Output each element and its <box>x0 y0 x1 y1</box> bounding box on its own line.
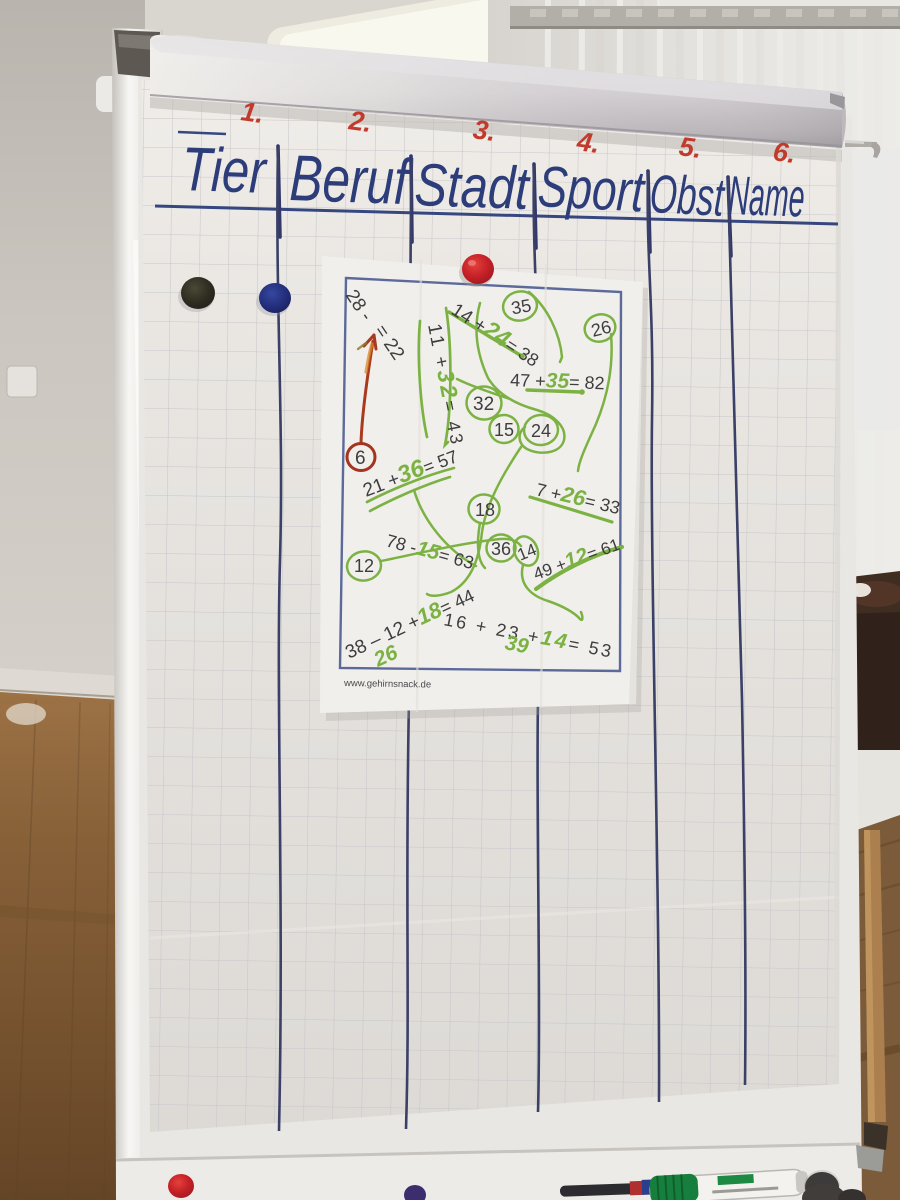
svg-text:2.: 2. <box>346 105 373 138</box>
svg-text:12: 12 <box>354 556 374 576</box>
svg-text:Tier: Tier <box>181 135 269 207</box>
svg-text:6: 6 <box>355 448 366 469</box>
svg-text:32: 32 <box>473 394 494 415</box>
svg-text:15: 15 <box>494 420 514 440</box>
svg-text:6.: 6. <box>771 136 797 169</box>
svg-text:36: 36 <box>491 539 511 559</box>
svg-text:5.: 5. <box>677 131 703 164</box>
svg-text:Name: Name <box>728 164 806 229</box>
svg-text:3.: 3. <box>471 114 497 147</box>
svg-text:1.: 1. <box>239 96 265 129</box>
svg-text:Beruf: Beruf <box>289 141 414 218</box>
svg-text:39: 39 <box>503 631 531 658</box>
svg-text:Obst: Obst <box>648 164 726 228</box>
svg-text:18: 18 <box>475 500 495 520</box>
svg-text:24: 24 <box>531 421 551 441</box>
svg-text:47 +35= 82: 47 +35= 82 <box>510 368 605 394</box>
svg-text:4.: 4. <box>574 126 601 159</box>
svg-text:Sport: Sport <box>536 154 647 225</box>
svg-text:Stadt: Stadt <box>414 151 532 222</box>
svg-text:35: 35 <box>510 295 533 318</box>
svg-text:www.gehirnsnack.de: www.gehirnsnack.de <box>343 678 431 691</box>
